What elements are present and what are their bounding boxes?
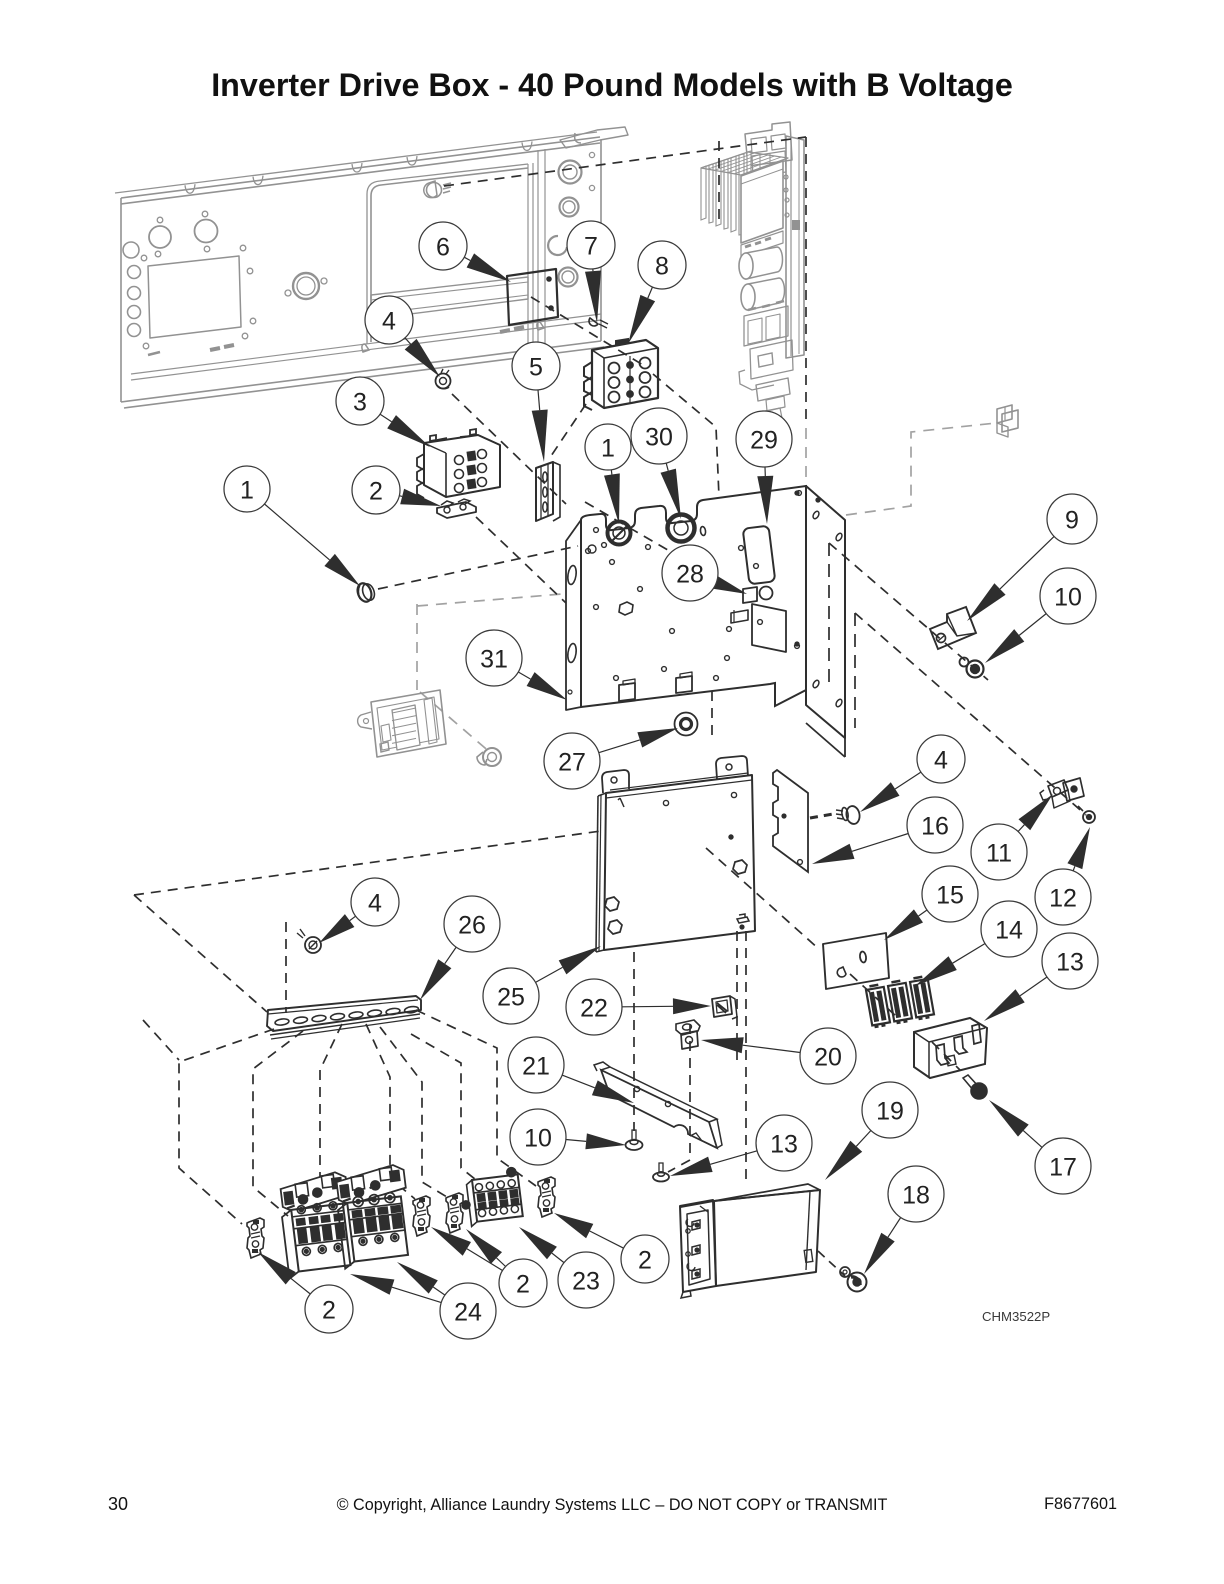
svg-text:17: 17 xyxy=(1049,1154,1077,1182)
svg-text:1: 1 xyxy=(240,477,254,505)
svg-text:27: 27 xyxy=(558,749,586,777)
svg-text:4: 4 xyxy=(382,308,396,336)
svg-text:2: 2 xyxy=(322,1297,336,1325)
svg-text:CHM3522P: CHM3522P xyxy=(982,1309,1050,1324)
svg-text:31: 31 xyxy=(480,646,508,674)
svg-text:12: 12 xyxy=(1049,885,1077,913)
svg-text:30: 30 xyxy=(108,1494,128,1514)
svg-text:4: 4 xyxy=(934,747,948,775)
svg-text:11: 11 xyxy=(986,840,1012,868)
svg-text:25: 25 xyxy=(497,984,525,1012)
svg-text:7: 7 xyxy=(584,233,598,261)
svg-text:3: 3 xyxy=(353,389,367,417)
svg-text:F8677601: F8677601 xyxy=(1044,1495,1117,1513)
svg-text:13: 13 xyxy=(1056,949,1084,977)
svg-text:30: 30 xyxy=(645,424,673,452)
svg-text:4: 4 xyxy=(368,890,382,918)
svg-text:28: 28 xyxy=(676,561,704,589)
svg-text:24: 24 xyxy=(454,1299,482,1327)
svg-text:5: 5 xyxy=(529,354,543,382)
svg-text:22: 22 xyxy=(580,995,608,1023)
svg-text:2: 2 xyxy=(369,478,383,506)
svg-text:20: 20 xyxy=(814,1044,842,1072)
svg-text:14: 14 xyxy=(995,917,1023,945)
svg-text:18: 18 xyxy=(902,1182,930,1210)
svg-text:21: 21 xyxy=(522,1053,550,1081)
svg-text:Inverter Drive Box - 40 Pound: Inverter Drive Box - 40 Pound Models wit… xyxy=(211,67,1013,103)
svg-text:6: 6 xyxy=(436,234,450,262)
svg-text:13: 13 xyxy=(770,1131,798,1159)
svg-text:29: 29 xyxy=(750,427,778,455)
svg-text:23: 23 xyxy=(572,1268,600,1296)
svg-text:15: 15 xyxy=(936,882,964,910)
svg-text:26: 26 xyxy=(458,912,486,940)
svg-text:10: 10 xyxy=(1054,584,1082,612)
svg-text:9: 9 xyxy=(1065,507,1079,535)
svg-text:19: 19 xyxy=(876,1098,904,1126)
svg-text:2: 2 xyxy=(516,1271,530,1299)
svg-text:8: 8 xyxy=(655,253,669,281)
svg-text:© Copyright, Alliance Laundry: © Copyright, Alliance Laundry Systems LL… xyxy=(337,1496,888,1514)
svg-text:16: 16 xyxy=(921,813,949,841)
svg-text:1: 1 xyxy=(601,435,615,463)
svg-text:2: 2 xyxy=(638,1247,652,1275)
svg-text:10: 10 xyxy=(524,1125,552,1153)
